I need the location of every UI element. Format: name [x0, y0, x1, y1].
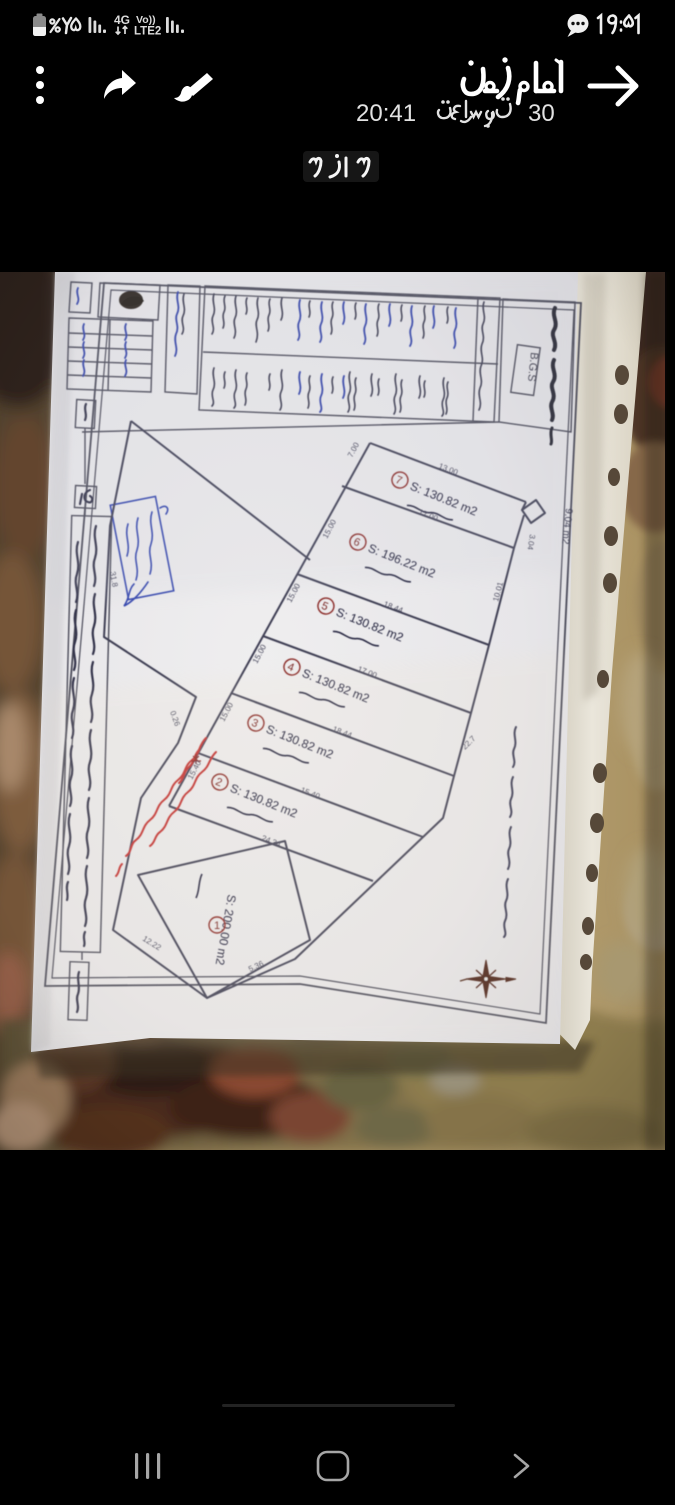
- svg-text:4G: 4G: [114, 13, 130, 27]
- svg-text:30: 30: [528, 100, 555, 127]
- svg-text:Vo)): Vo)): [136, 14, 156, 26]
- svg-text:20:41: 20:41: [356, 100, 416, 127]
- svg-text:LTE2: LTE2: [134, 26, 161, 38]
